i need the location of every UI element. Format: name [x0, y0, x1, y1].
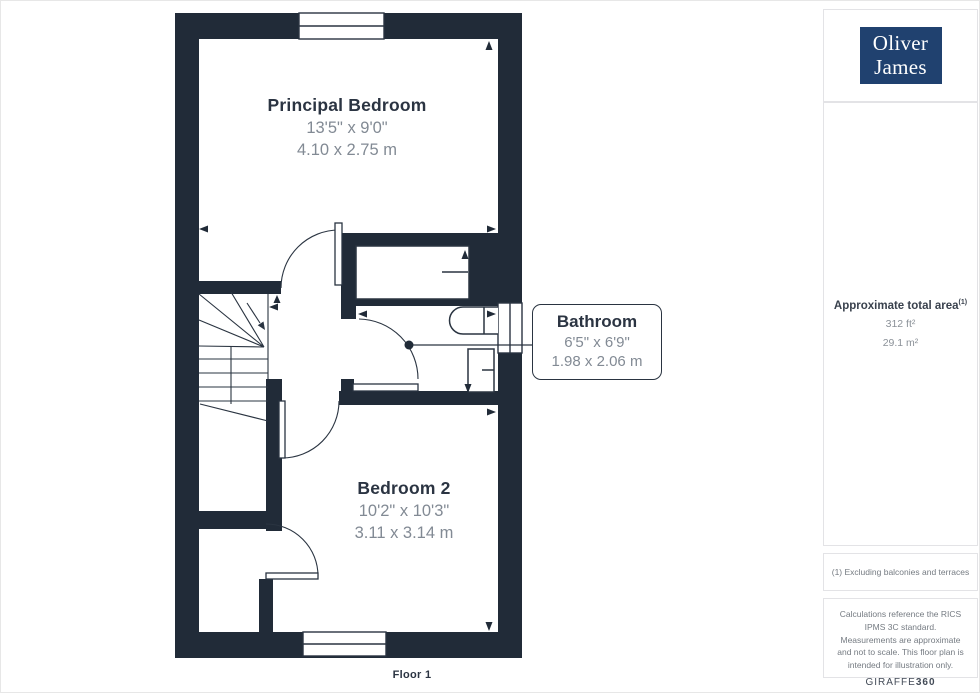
dim-arrow-up-icon	[486, 41, 493, 50]
door-pivot-dot	[405, 341, 414, 350]
total-area-imperial: 312 ft²	[886, 318, 916, 330]
wall-stub	[341, 379, 354, 393]
dim-arrow-right-icon	[487, 226, 496, 233]
dim-arrow-left-icon	[199, 226, 208, 233]
bathtub	[450, 307, 499, 334]
footnote-box: (1) Excluding balconies and terraces	[823, 553, 978, 591]
brand-name: GIRAFFE	[865, 677, 915, 688]
footnote-text: (1) Excluding balconies and terraces	[832, 567, 970, 577]
dim-arrow-down-icon	[486, 622, 493, 631]
room-dimensions-imperial: 10'2" x 10'3"	[254, 502, 554, 521]
stair-break-line	[200, 404, 268, 421]
door-leaf-bedroom2	[279, 401, 285, 458]
wall-landing-top	[198, 281, 281, 294]
wall-storage-right	[259, 579, 273, 632]
wall-outer-left	[175, 13, 199, 658]
logo-box: Oliver James	[823, 9, 978, 102]
stair-winders	[199, 292, 264, 347]
disclaimer-box: Calculations reference the RICS IPMS 3C …	[823, 598, 978, 678]
bathroom-callout: Bathroom 6'5" x 6'9" 1.98 x 2.06 m	[532, 304, 662, 380]
door-leaf-storage	[266, 573, 318, 579]
dim-arrow-right-icon	[487, 409, 496, 416]
wall-bedroom2-top	[339, 391, 522, 405]
stair-direction-arrow-icon	[258, 322, 265, 331]
stair-direction-line	[247, 303, 260, 323]
room-name: Principal Bedroom	[197, 95, 497, 116]
room-dimensions-imperial: 13'5" x 9'0"	[197, 119, 497, 138]
giraffe360-brand: GIRAFFE360	[836, 677, 965, 688]
logo-line1: Oliver	[873, 32, 928, 56]
door-arc-principal	[281, 230, 339, 288]
room-name: Bedroom 2	[254, 478, 554, 499]
wall-bathroom-left	[341, 306, 356, 319]
brand-suffix: 360	[916, 677, 936, 688]
door-leaf-principal	[335, 223, 342, 285]
logo-line2: James	[874, 56, 927, 80]
floor-label: Floor 1	[1, 669, 823, 681]
bedroom2-label: Bedroom 2 10'2" x 10'3" 3.11 x 3.14 m	[254, 478, 554, 543]
door-arc-bedroom2	[282, 401, 339, 458]
info-sidebar: Oliver James Approximate total area(1) 3…	[823, 1, 980, 693]
staircase	[199, 292, 268, 421]
dim-arrow-up-icon	[274, 295, 281, 303]
door-leaf-bathroom	[353, 384, 418, 391]
total-area-superscript: (1)	[959, 299, 968, 306]
room-dimensions-metric: 4.10 x 2.75 m	[197, 141, 497, 160]
floorplan-page: Principal Bedroom 13'5" x 9'0" 4.10 x 2.…	[0, 0, 980, 693]
dim-arrow-left-icon	[358, 311, 367, 318]
total-area-metric: 29.1 m²	[883, 337, 919, 349]
dim-arrow-left-icon	[269, 304, 278, 311]
room-name: Bathroom	[533, 312, 661, 332]
oliver-james-logo: Oliver James	[860, 27, 942, 84]
room-dimensions-imperial: 6'5" x 6'9"	[533, 334, 661, 351]
total-area-title-text: Approximate total area	[834, 299, 959, 311]
disclaimer-text: Calculations reference the RICS IPMS 3C …	[836, 608, 965, 672]
total-area-title: Approximate total area(1)	[834, 299, 967, 312]
principal-bedroom-label: Principal Bedroom 13'5" x 9'0" 4.10 x 2.…	[197, 95, 497, 160]
stair-treads	[199, 359, 268, 401]
room-dimensions-metric: 1.98 x 2.06 m	[533, 353, 661, 370]
total-area-box: Approximate total area(1) 312 ft² 29.1 m…	[823, 102, 978, 546]
room-dimensions-metric: 3.11 x 3.14 m	[254, 524, 554, 543]
